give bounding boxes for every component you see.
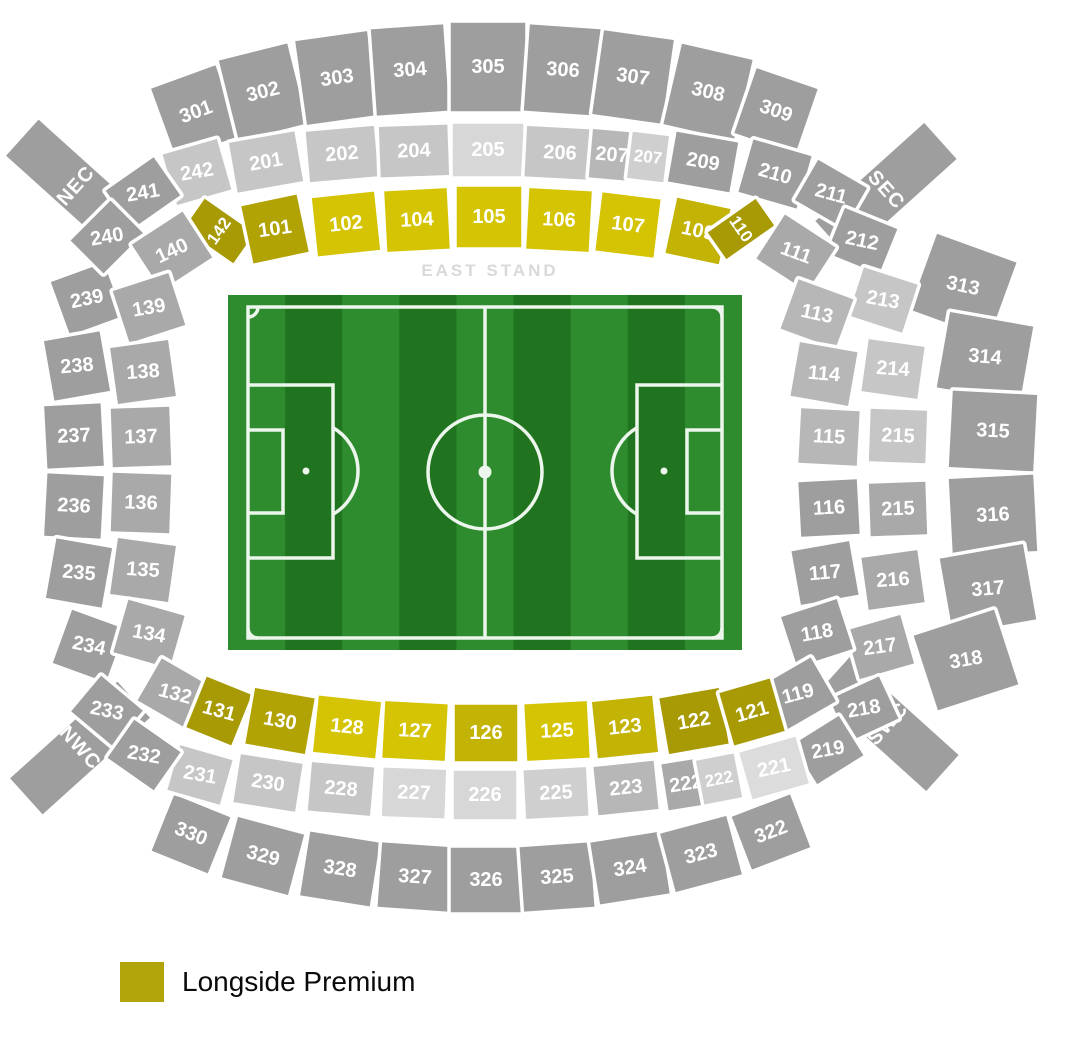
section-116[interactable]: 116 [797,477,862,538]
section-138[interactable]: 138 [108,338,178,406]
section-228[interactable]: 228 [306,760,376,818]
section-107[interactable]: 107 [593,190,662,259]
section-127[interactable]: 127 [380,699,449,762]
section-136[interactable]: 136 [109,471,173,535]
section-204[interactable]: 204 [377,123,451,179]
section-236[interactable]: 236 [42,471,105,540]
svg-text:315: 315 [976,419,1010,443]
svg-text:223: 223 [608,775,643,800]
section-118[interactable]: 118 [779,597,855,669]
svg-text:317: 317 [970,577,1005,602]
svg-text:117: 117 [808,561,842,586]
svg-text:116: 116 [812,496,845,520]
svg-text:128: 128 [329,714,364,739]
svg-text:214: 214 [876,357,912,381]
section-305[interactable]: 305 [449,21,527,113]
svg-text:217: 217 [862,634,898,660]
section-226[interactable]: 226 [452,769,518,821]
svg-text:138: 138 [126,360,161,384]
svg-text:104: 104 [400,208,435,232]
section-105[interactable]: 105 [455,185,523,249]
svg-text:327: 327 [398,865,433,889]
svg-text:236: 236 [57,494,91,518]
section-214[interactable]: 214 [859,337,926,401]
svg-text:206: 206 [543,141,577,165]
section-106[interactable]: 106 [524,186,593,253]
section-215[interactable]: 215 [867,407,929,465]
svg-text:316: 316 [976,503,1010,527]
svg-text:216: 216 [876,568,911,592]
svg-text:207: 207 [633,146,663,168]
svg-text:106: 106 [542,208,576,232]
section-201[interactable]: 201 [227,129,305,194]
svg-text:101: 101 [257,216,293,242]
section-329[interactable]: 329 [220,815,307,897]
legend-label: Longside Premium [182,966,415,998]
section-130[interactable]: 130 [243,686,316,756]
section-115[interactable]: 115 [797,406,862,467]
svg-text:126: 126 [469,722,502,744]
svg-text:238: 238 [59,354,94,379]
section-328[interactable]: 328 [298,830,382,909]
section-213[interactable]: 213 [846,265,920,335]
svg-text:136: 136 [124,491,158,514]
svg-text:135: 135 [126,558,161,582]
section-123[interactable]: 123 [590,694,660,760]
legend: Longside Premium [120,962,415,1002]
svg-text:235: 235 [61,561,96,586]
svg-text:225: 225 [539,781,573,805]
svg-text:227: 227 [397,781,431,804]
section-325[interactable]: 325 [518,841,597,914]
svg-text:305: 305 [471,56,504,78]
section-230[interactable]: 230 [231,752,304,814]
section-205[interactable]: 205 [451,122,525,178]
svg-text:325: 325 [540,865,575,889]
section-128[interactable]: 128 [311,694,383,761]
section-327[interactable]: 327 [376,841,455,914]
svg-text:307: 307 [615,64,651,90]
svg-text:304: 304 [393,58,429,82]
section-304[interactable]: 304 [369,22,451,117]
svg-text:127: 127 [398,719,432,743]
section-315[interactable]: 315 [947,389,1039,473]
section-216[interactable]: 216 [859,548,926,612]
svg-text:107: 107 [610,212,646,238]
stadium-seating-map: NECSECNWCSWC3013023033043053063073083092… [0,0,1089,1051]
legend-color-swatch [120,962,164,1002]
svg-text:123: 123 [607,714,642,739]
section-113[interactable]: 113 [778,277,855,351]
svg-text:306: 306 [546,58,581,82]
svg-text:102: 102 [328,211,363,236]
svg-text:125: 125 [540,719,574,743]
svg-text:237: 237 [57,424,91,448]
svg-text:207: 207 [594,143,629,168]
section-207-2[interactable]: 207 [625,130,671,185]
svg-text:105: 105 [472,206,505,228]
svg-text:228: 228 [323,777,358,802]
section-323[interactable]: 323 [658,814,744,894]
east-stand-label: EAST STAND [330,261,650,281]
svg-text:114: 114 [807,362,842,387]
section-237[interactable]: 237 [42,401,105,470]
svg-text:215: 215 [881,497,915,520]
section-227[interactable]: 227 [380,766,448,820]
section-114[interactable]: 114 [788,340,859,408]
svg-text:215: 215 [881,424,915,447]
svg-text:326: 326 [469,869,502,891]
section-223[interactable]: 223 [591,759,660,817]
section-303[interactable]: 303 [293,29,381,127]
section-222-2[interactable]: 222 [694,751,744,806]
section-225[interactable]: 225 [522,765,591,820]
section-238[interactable]: 238 [42,329,112,402]
svg-text:204: 204 [397,139,432,162]
section-209[interactable]: 209 [666,130,740,195]
svg-text:137: 137 [124,425,158,448]
section-322[interactable]: 322 [729,792,812,872]
section-102[interactable]: 102 [310,190,382,259]
svg-text:303: 303 [319,65,355,91]
section-202[interactable]: 202 [304,124,380,184]
section-135[interactable]: 135 [108,536,178,604]
section-101[interactable]: 101 [239,192,311,265]
section-104[interactable]: 104 [382,186,451,253]
section-235[interactable]: 235 [44,536,114,609]
section-134[interactable]: 134 [111,598,187,671]
section-215-2[interactable]: 215 [867,480,929,538]
football-pitch [228,295,743,650]
section-125[interactable]: 125 [522,699,591,762]
section-137[interactable]: 137 [109,405,173,469]
svg-text:314: 314 [967,345,1003,370]
section-117[interactable]: 117 [789,539,860,607]
svg-text:226: 226 [468,784,501,806]
stadium-map: NECSECNWCSWC3013023033043053063073083092… [0,0,1089,1051]
svg-text:115: 115 [812,425,845,449]
section-126[interactable]: 126 [453,703,519,763]
svg-text:205: 205 [471,139,504,161]
svg-text:202: 202 [324,142,359,167]
section-326[interactable]: 326 [449,846,523,914]
